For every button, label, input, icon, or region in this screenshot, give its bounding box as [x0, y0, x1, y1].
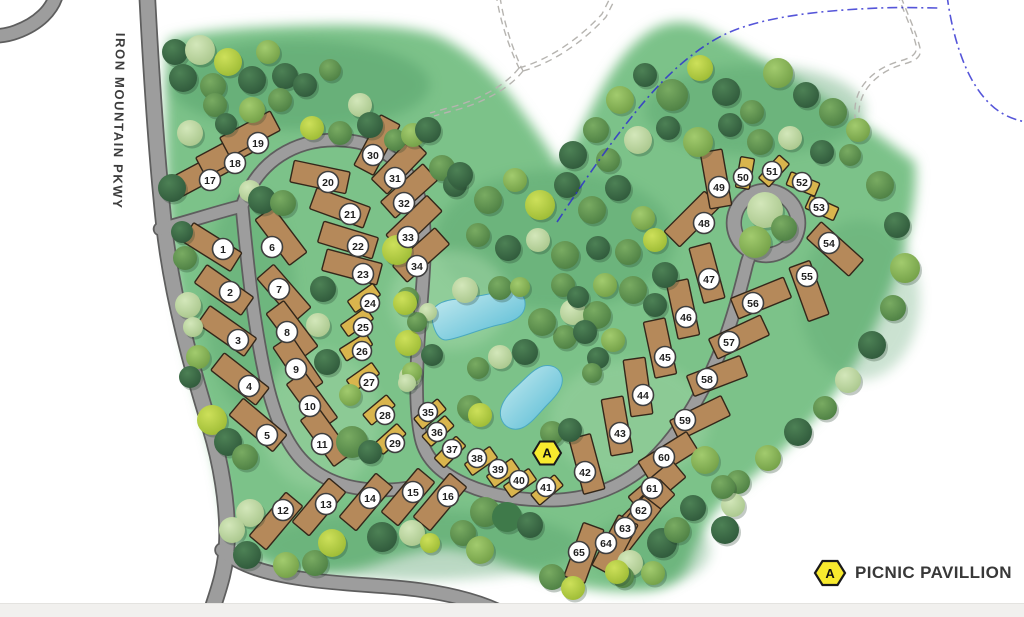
site-number-54: 54 [819, 233, 840, 254]
tree [624, 126, 652, 154]
tree [525, 190, 555, 220]
trail-line [500, 0, 523, 71]
tree [683, 127, 713, 157]
tree [467, 357, 489, 379]
site-number-text: 32 [398, 198, 410, 210]
site-number-text: 27 [363, 377, 375, 389]
site-number-12: 12 [273, 500, 294, 521]
tree [573, 320, 597, 344]
tree [528, 308, 556, 336]
tree [619, 276, 647, 304]
tree [567, 286, 589, 308]
tree [890, 253, 920, 283]
legend-marker-letter: A [825, 566, 835, 581]
tree [339, 384, 361, 406]
site-number-text: 38 [471, 453, 483, 465]
site-number-57: 57 [719, 332, 740, 353]
tree [605, 175, 631, 201]
site-number-text: 63 [619, 523, 631, 535]
site-number-59: 59 [675, 410, 696, 431]
site-number-21: 21 [340, 204, 361, 225]
site-number-text: 62 [635, 505, 647, 517]
tree [586, 236, 610, 260]
tree [582, 363, 602, 383]
site-number-text: 8 [284, 327, 290, 339]
site-number-text: 13 [320, 499, 332, 511]
tree [747, 129, 773, 155]
tree [680, 495, 706, 521]
site-number-24: 24 [361, 294, 380, 313]
tree [813, 396, 837, 420]
site-number-text: 45 [659, 352, 671, 364]
tree [778, 126, 802, 150]
tree [357, 112, 383, 138]
tree [578, 196, 606, 224]
site-number-text: 31 [389, 173, 401, 185]
tree [232, 444, 258, 470]
site-number-14: 14 [360, 488, 381, 509]
site-number-2: 2 [220, 282, 241, 303]
site-number-17: 17 [200, 170, 221, 191]
map-bottom-strip [0, 603, 1024, 617]
tree [503, 168, 527, 192]
site-number-text: 6 [269, 242, 275, 254]
tree [593, 273, 617, 297]
site-number-text: 35 [422, 407, 434, 419]
tree [495, 235, 521, 261]
site-number-37: 37 [443, 440, 462, 459]
site-number-25: 25 [354, 318, 373, 337]
tree [643, 293, 667, 317]
picnic-pavilion-marker: A [533, 442, 561, 465]
tree [415, 117, 441, 143]
tree [656, 116, 680, 140]
site-number-48: 48 [694, 213, 715, 234]
site-number-text: 46 [680, 312, 692, 324]
site-number-40: 40 [510, 471, 529, 490]
site-number-text: 1 [220, 244, 226, 256]
tree [256, 40, 280, 64]
site-number-7: 7 [269, 279, 290, 300]
site-number-45: 45 [655, 347, 676, 368]
tree [238, 66, 266, 94]
site-number-text: 4 [246, 381, 252, 393]
tree [183, 317, 203, 337]
site-number-text: 40 [513, 475, 525, 487]
site-number-1: 1 [213, 239, 234, 260]
site-number-35: 35 [419, 403, 438, 422]
tree [318, 529, 346, 557]
tree [615, 239, 641, 265]
site-number-36: 36 [428, 423, 447, 442]
tree [474, 186, 502, 214]
site-number-text: 56 [747, 298, 759, 310]
tree [420, 533, 440, 553]
tree [268, 88, 292, 112]
site-number-46: 46 [676, 307, 697, 328]
site-number-64: 64 [596, 533, 617, 554]
site-number-text: 60 [658, 452, 670, 464]
tree [273, 552, 299, 578]
site-number-50: 50 [734, 168, 753, 187]
site-number-62: 62 [631, 500, 652, 521]
pavilion-letter: A [542, 446, 552, 461]
site-number-15: 15 [403, 482, 424, 503]
tree [687, 55, 713, 81]
tree [858, 331, 886, 359]
site-number-60: 60 [654, 447, 675, 468]
site-number-31: 31 [385, 168, 406, 189]
tree [664, 517, 690, 543]
tree [606, 86, 634, 114]
tree [185, 35, 215, 65]
site-number-text: 36 [431, 427, 443, 439]
map-canvas: 1234567891011121314151617181920212223242… [0, 0, 1024, 617]
site-number-text: 43 [614, 428, 626, 440]
site-number-text: 65 [573, 547, 585, 559]
site-number-43: 43 [610, 423, 631, 444]
tree [712, 78, 740, 106]
site-number-text: 3 [235, 335, 241, 347]
site-number-32: 32 [394, 193, 415, 214]
site-number-47: 47 [699, 269, 720, 290]
tree [367, 522, 397, 552]
tree [179, 366, 201, 388]
tree [835, 367, 861, 393]
site-number-9: 9 [286, 359, 307, 380]
tree [793, 82, 819, 108]
trail-line [496, 0, 519, 68]
site-number-text: 64 [600, 538, 612, 550]
tree [554, 172, 580, 198]
tree [517, 512, 543, 538]
site-number-26: 26 [353, 342, 372, 361]
site-number-text: 51 [766, 166, 778, 178]
site-number-text: 29 [389, 438, 401, 450]
tree [468, 403, 492, 427]
tree [539, 564, 565, 590]
site-number-text: 10 [304, 401, 316, 413]
site-number-53: 53 [810, 198, 829, 217]
tree [319, 59, 341, 81]
site-number-text: 26 [356, 346, 368, 358]
tree [233, 541, 261, 569]
site-number-55: 55 [797, 266, 818, 287]
site-number-text: 47 [703, 274, 715, 286]
tree [718, 113, 742, 137]
site-number-10: 10 [300, 396, 321, 417]
tree [652, 262, 678, 288]
site-number-text: 5 [264, 430, 270, 442]
site-number-text: 30 [367, 150, 379, 162]
site-number-27: 27 [360, 373, 379, 392]
tree [512, 339, 538, 365]
tree [739, 226, 771, 258]
site-number-text: 24 [364, 298, 376, 310]
site-number-13: 13 [316, 494, 337, 515]
site-number-text: 23 [357, 269, 369, 281]
tree [656, 79, 688, 111]
site-number-text: 12 [277, 505, 289, 517]
site-number-3: 3 [228, 330, 249, 351]
site-number-22: 22 [348, 236, 369, 257]
site-number-63: 63 [615, 518, 636, 539]
tree [866, 171, 894, 199]
tree [270, 190, 296, 216]
legend-label: PICNIC PAVILLION [855, 563, 1012, 583]
site-number-text: 25 [357, 322, 369, 334]
site-number-5: 5 [257, 425, 278, 446]
site-number-text: 44 [637, 390, 649, 402]
tree [810, 140, 834, 164]
tree [358, 440, 382, 464]
tree [583, 117, 609, 143]
site-number-text: 34 [411, 261, 423, 273]
site-number-text: 33 [402, 232, 414, 244]
tree [561, 576, 585, 600]
trail-line [519, 0, 612, 68]
site-number-text: 2 [227, 287, 233, 299]
site-number-11: 11 [312, 434, 333, 455]
trail-line [523, 0, 616, 71]
tree [162, 39, 188, 65]
site-number-56: 56 [743, 293, 764, 314]
tree [643, 228, 667, 252]
site-number-23: 23 [353, 264, 374, 285]
tree [488, 276, 512, 300]
site-number-text: 54 [823, 238, 835, 250]
tree [884, 212, 910, 238]
site-number-text: 16 [442, 491, 454, 503]
picnic-pavilion-legend-icon: A [812, 557, 848, 589]
tree [239, 97, 265, 123]
tree [633, 63, 657, 87]
site-number-text: 57 [723, 337, 735, 349]
site-number-text: 41 [540, 482, 552, 494]
tree [214, 48, 242, 76]
tree [171, 221, 193, 243]
site-number-text: 17 [204, 175, 216, 187]
road-label-iron-mountain-pkwy: IRON MOUNTAIN PKWY [110, 33, 128, 210]
tree [466, 536, 494, 564]
tree [215, 113, 237, 135]
site-number-38: 38 [468, 449, 487, 468]
tree [559, 141, 587, 169]
tree [631, 206, 655, 230]
site-number-52: 52 [793, 173, 812, 192]
site-number-18: 18 [225, 153, 246, 174]
site-number-text: 52 [796, 177, 808, 189]
site-number-34: 34 [407, 256, 428, 277]
legend: A PICNIC PAVILLION [812, 557, 1012, 589]
site-number-text: 19 [252, 138, 264, 150]
tree [605, 560, 629, 584]
tree [711, 475, 735, 499]
site-number-text: 50 [737, 172, 749, 184]
site-number-29: 29 [386, 434, 405, 453]
site-number-text: 61 [646, 483, 658, 495]
site-number-20: 20 [318, 172, 339, 193]
site-number-65: 65 [569, 542, 590, 563]
site-number-41: 41 [537, 478, 556, 497]
tree [398, 374, 416, 392]
site-number-58: 58 [697, 369, 718, 390]
tree [175, 292, 201, 318]
tree [158, 174, 186, 202]
site-number-42: 42 [575, 462, 596, 483]
site-number-16: 16 [438, 486, 459, 507]
site-number-text: 7 [276, 284, 282, 296]
tree [691, 446, 719, 474]
tree [219, 517, 245, 543]
picnic-pavilion-icon: A [533, 442, 561, 465]
site-number-text: 18 [229, 158, 241, 170]
site-number-text: 59 [679, 415, 691, 427]
site-number-text: 37 [446, 444, 458, 456]
tree [306, 313, 330, 337]
tree [393, 291, 417, 315]
site-number-text: 22 [352, 241, 364, 253]
site-number-19: 19 [248, 133, 269, 154]
tree [169, 64, 197, 92]
site-number-39: 39 [489, 460, 508, 479]
site-number-text: 53 [813, 202, 825, 214]
tree [711, 516, 739, 544]
site-number-61: 61 [642, 478, 663, 499]
tree [466, 223, 490, 247]
tree [186, 345, 210, 369]
tree [293, 73, 317, 97]
site-number-text: 14 [364, 493, 376, 505]
tree [510, 277, 530, 297]
tree [755, 445, 781, 471]
tree [310, 276, 336, 302]
site-number-text: 39 [492, 464, 504, 476]
tree [452, 277, 478, 303]
tree [784, 418, 812, 446]
site-number-28: 28 [376, 406, 395, 425]
tree [839, 144, 861, 166]
site-number-text: 48 [698, 218, 710, 230]
tree [601, 328, 625, 352]
site-number-4: 4 [239, 376, 260, 397]
tree [819, 98, 847, 126]
site-number-text: 20 [322, 177, 334, 189]
tree [328, 121, 352, 145]
site-number-49: 49 [709, 177, 730, 198]
tree [177, 120, 203, 146]
tree [641, 561, 665, 585]
site-number-text: 58 [701, 374, 713, 386]
stream-line [947, 0, 1024, 122]
tree [558, 418, 582, 442]
site-number-6: 6 [262, 237, 283, 258]
site-number-text: 11 [316, 439, 327, 451]
site-number-44: 44 [633, 385, 654, 406]
site-number-text: 28 [379, 410, 391, 422]
tree [740, 100, 764, 124]
site-number-8: 8 [277, 322, 298, 343]
tree [314, 349, 340, 375]
site-number-text: 21 [344, 209, 356, 221]
campground-site-map: 1234567891011121314151617181920212223242… [0, 0, 1024, 617]
site-number-51: 51 [763, 162, 782, 181]
site-number-text: 42 [579, 467, 591, 479]
tree [447, 162, 473, 188]
site-number-text: 49 [713, 182, 725, 194]
site-number-text: 9 [293, 364, 299, 376]
tree [771, 215, 797, 241]
tree [551, 241, 579, 269]
site-number-33: 33 [398, 227, 419, 248]
site-number-30: 30 [363, 145, 384, 166]
site-number-text: 15 [407, 487, 419, 499]
site-number-text: 55 [801, 271, 813, 283]
tree [488, 345, 512, 369]
tree [846, 118, 870, 142]
tree [763, 58, 793, 88]
tree [300, 116, 324, 140]
tree [526, 228, 550, 252]
tree [880, 295, 906, 321]
tree [173, 246, 197, 270]
tree [421, 344, 443, 366]
